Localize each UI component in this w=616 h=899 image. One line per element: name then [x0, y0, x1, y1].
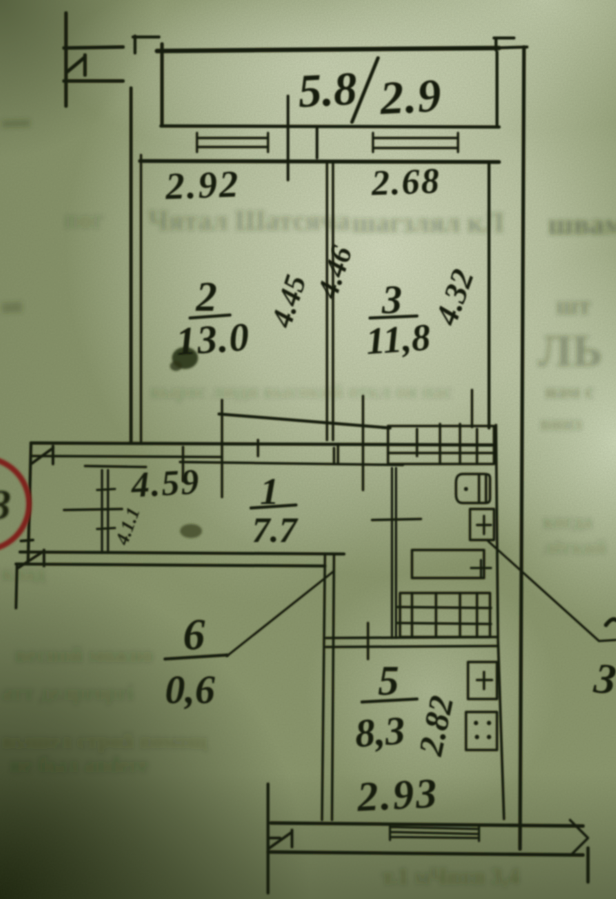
- svg-text:0,6: 0,6: [165, 667, 215, 712]
- svg-text:нам с: нам с: [545, 381, 594, 403]
- svg-text:6: 6: [183, 610, 205, 659]
- svg-text:швам: швам: [548, 208, 616, 241]
- svg-text:2.93: 2.93: [355, 771, 440, 821]
- svg-text:7.7: 7.7: [252, 510, 299, 550]
- svg-text:весной можно: весной можно: [15, 642, 153, 667]
- svg-text:3: 3: [381, 277, 402, 322]
- svg-text:13.0: 13.0: [174, 314, 251, 364]
- svg-text:шт: шт: [556, 291, 591, 320]
- svg-text:11,8: 11,8: [365, 317, 432, 363]
- svg-text:2.9: 2.9: [378, 70, 443, 125]
- svg-text:когда: когда: [543, 511, 592, 533]
- svg-text:5: 5: [378, 659, 399, 705]
- svg-text:т.1 мЧпоп 3,4: т.1 мЧпоп 3,4: [382, 864, 520, 889]
- svg-text:лёгкий: лёгкий: [543, 537, 607, 559]
- svg-text:5.8: 5.8: [297, 63, 358, 118]
- svg-text:вырос люди высокий откл он п: вырос люди высокий откл он пас: [150, 381, 453, 403]
- svg-text:2.68: 2.68: [370, 161, 441, 203]
- svg-text:вышел строй помощ: вышел строй помощ: [2, 728, 207, 753]
- svg-text:Чятал Шатсяча: Чятал Шатсяча: [148, 206, 350, 237]
- svg-text:пог: пог: [64, 205, 104, 234]
- svg-text:шагзлял кЛ: шагзлял кЛ: [352, 208, 504, 239]
- svg-text:не был andere: не был andere: [10, 752, 149, 777]
- svg-text:атт делpropri: атт делpropri: [2, 680, 134, 705]
- svg-text:2: 2: [195, 275, 217, 321]
- svg-text:ЛЬ: ЛЬ: [538, 325, 603, 376]
- svg-text:4.59: 4.59: [129, 461, 201, 505]
- svg-text:8,3: 8,3: [353, 708, 406, 756]
- svg-text:клад: клад: [2, 563, 45, 585]
- svg-text:3: 3: [0, 483, 11, 529]
- svg-text:вниз: вниз: [540, 413, 582, 435]
- svg-text:2.92: 2.92: [164, 163, 241, 208]
